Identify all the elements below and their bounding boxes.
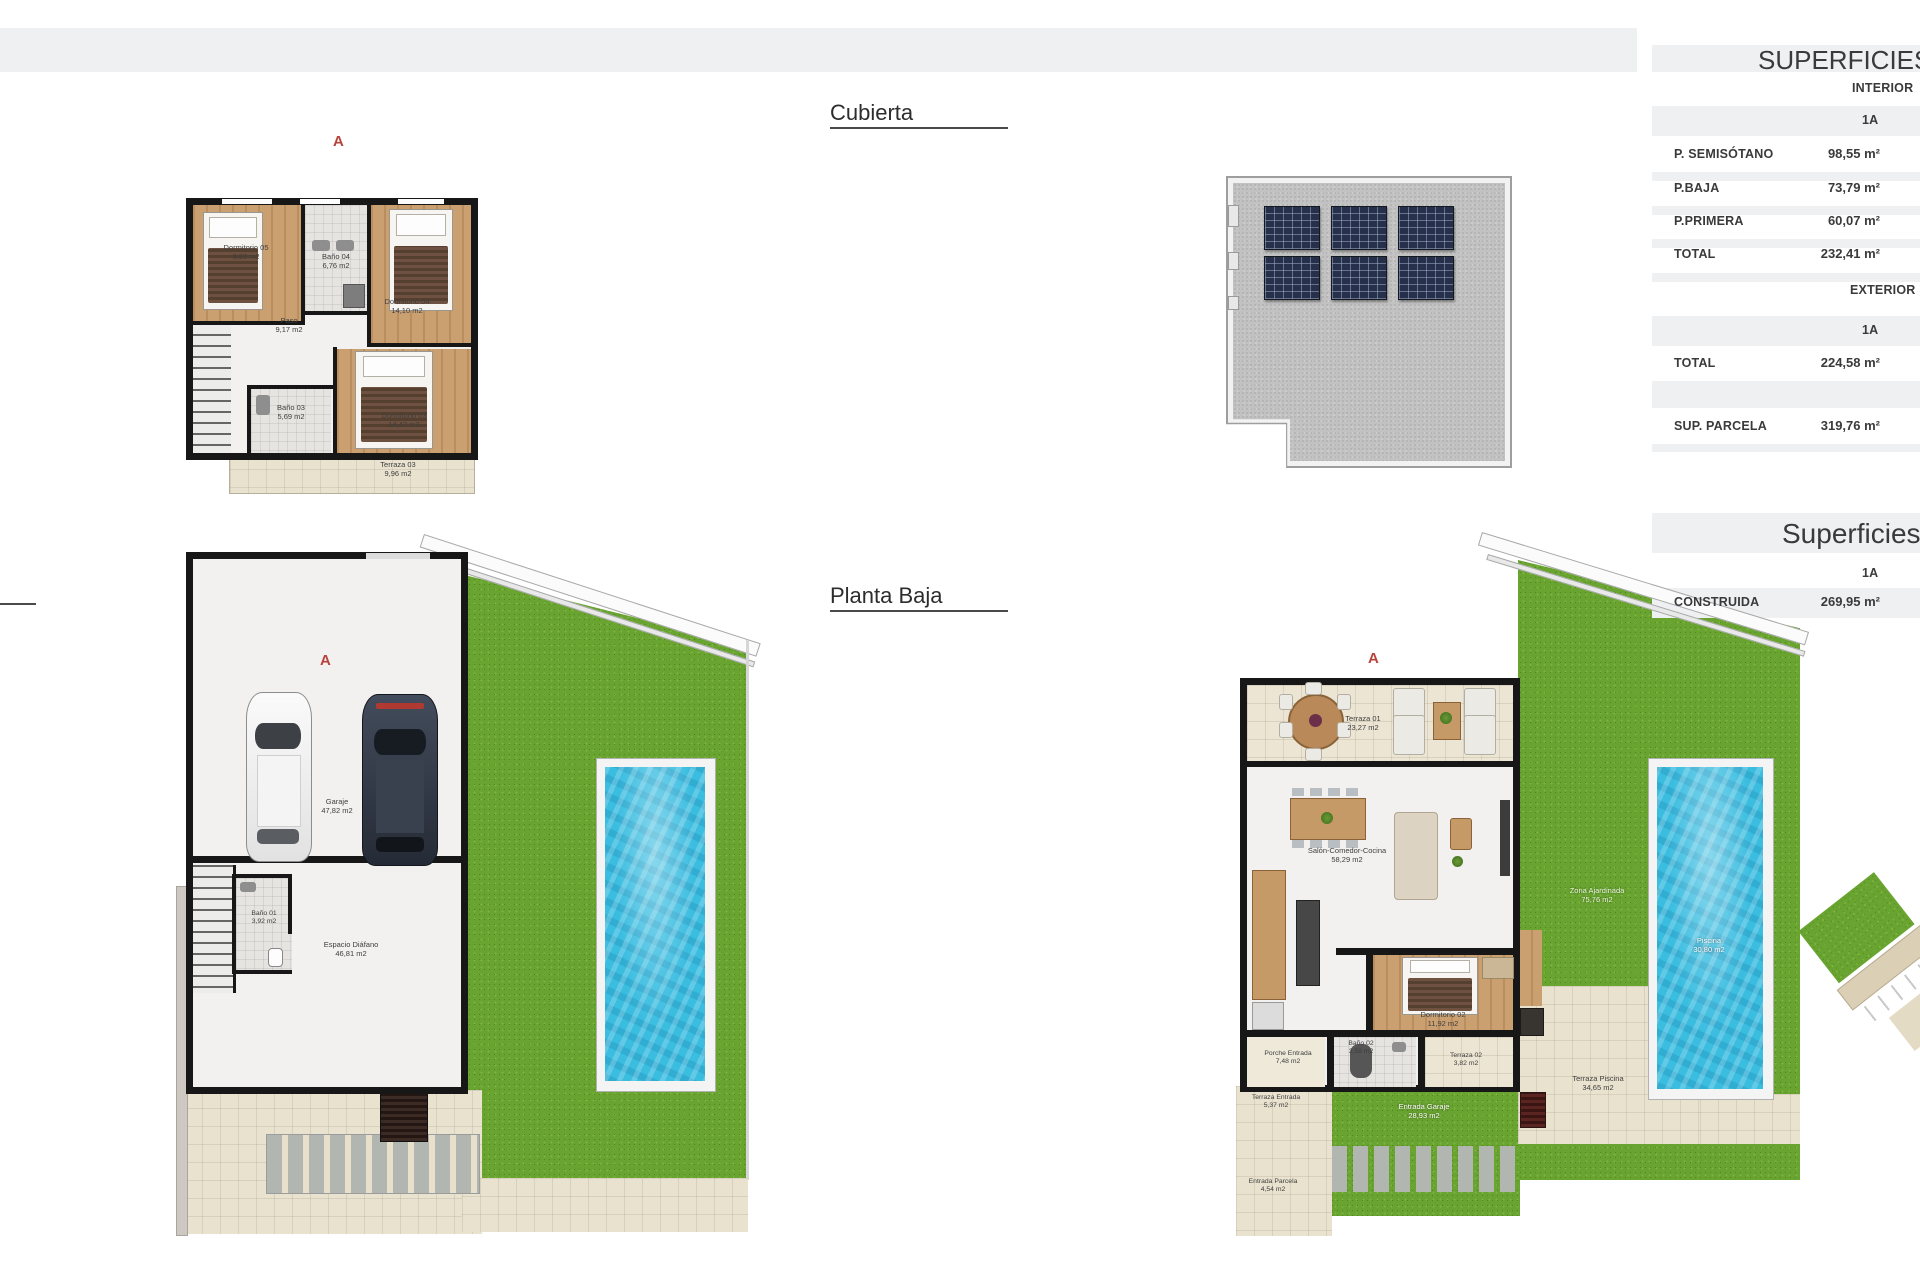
fridge [1252, 1002, 1284, 1030]
row-value-construida: 269,95 m² [1782, 594, 1880, 609]
room-label-bano-01: Baño 01 3,92 m2 [224, 910, 304, 927]
solar-panel [1331, 256, 1387, 300]
room-name: Terraza 02 [1426, 1052, 1506, 1060]
coffee-table [1450, 818, 1472, 850]
interior-wall [232, 970, 292, 974]
interior-wall [367, 205, 371, 347]
room-name: Porche Entrada [1253, 1050, 1323, 1058]
room-label-garaje: Garaje 47,82 m2 [287, 797, 387, 816]
tv-unit [1500, 800, 1510, 876]
interior-wall [1247, 1030, 1513, 1037]
pool-water [1657, 767, 1763, 1089]
row-label-sup-parcela: SUP. PARCELA [1674, 419, 1767, 433]
floor-plan-sheet: Cubierta Planta Baja SUPERFICIES INTERIO… [0, 0, 1920, 1280]
room-name: Terraza 01 [1313, 714, 1413, 723]
side-deck [1518, 930, 1542, 1006]
planta-baja-title: Planta Baja [830, 583, 943, 609]
room-name: Entrada Parcela [1240, 1178, 1306, 1186]
room-area: 14,42 m2 [354, 420, 454, 429]
parcel-boundary [746, 640, 749, 1180]
interior-wall [333, 347, 337, 453]
staircase [193, 323, 231, 453]
exterior-header: EXTERIOR [1850, 283, 1916, 297]
room-label-dormitorio-03: Dormitorio 03 14,42 m2 [354, 411, 454, 430]
room-area: 4,54 m2 [1240, 1186, 1306, 1194]
room-name: Salón-Comedor-Cocina [1292, 846, 1402, 855]
car-rear-window [376, 837, 424, 852]
garage-entrance-pavers [1332, 1146, 1518, 1192]
pool-water [605, 767, 705, 1081]
room-name: Garaje [287, 797, 387, 806]
blanket [394, 246, 447, 304]
solar-panel [1264, 206, 1320, 250]
room-area: 5,69 m2 [251, 412, 331, 421]
kitchen-island [1296, 900, 1320, 986]
room-name: Paso [249, 316, 329, 325]
room-name: Baño 02 [1330, 1040, 1392, 1048]
room-label-piscina: Piscina 30,80 m2 [1659, 936, 1759, 955]
doormat [380, 1092, 428, 1142]
room-area: 9,93 m2 [196, 252, 296, 261]
room-area: 6,76 m2 [296, 261, 376, 270]
interior-wall [247, 385, 335, 389]
room-area: 11,92 m2 [1393, 1019, 1493, 1028]
room-label-dormitorio-04: Dormitorio 04 14,10 m2 [357, 297, 457, 316]
plant [1440, 712, 1452, 724]
section-marker-a: A [1368, 650, 1379, 667]
room-name: Dormitorio 05 [196, 243, 296, 252]
room-area: 34,65 m2 [1548, 1083, 1648, 1092]
room-name: Baño 01 [224, 910, 304, 918]
room-area: 28,93 m2 [1384, 1111, 1464, 1120]
plant [1321, 812, 1333, 824]
sink [1392, 1042, 1406, 1052]
empty-row-band [1652, 381, 1920, 408]
row-label-semisotano: P. SEMISÓTANO [1674, 147, 1773, 161]
pillow [396, 214, 447, 236]
room-label-terraza-02: Terraza 02 3,82 m2 [1426, 1052, 1506, 1069]
sink [336, 240, 354, 251]
bed [389, 209, 453, 311]
car-windshield [255, 723, 301, 749]
room-name: Dormitorio 04 [357, 297, 457, 306]
room-name: Baño 03 [251, 403, 331, 412]
superficies-title: SUPERFICIES [1758, 45, 1920, 76]
room-area: 9,96 m2 [348, 469, 448, 478]
row-value-pbaja: 73,79 m² [1782, 180, 1880, 195]
roof-vent [1228, 205, 1239, 227]
interior-unit-label: 1A [1862, 113, 1878, 127]
doormat [1520, 1092, 1546, 1128]
chair-row [1292, 788, 1362, 796]
row-value-total-exterior: 224,58 m² [1782, 355, 1880, 370]
room-area: 47,82 m2 [287, 806, 387, 815]
cubierta-title-rule [830, 127, 1008, 129]
car-white [246, 692, 312, 862]
room-name: Zona Ajardinada [1547, 886, 1647, 895]
plant [1452, 856, 1463, 867]
room-label-zona-ajardinada: Zona Ajardinada 75,76 m2 [1547, 886, 1647, 905]
staircase [193, 865, 236, 993]
blanket [1408, 978, 1472, 1010]
car-roof [257, 755, 301, 827]
room-name: Piscina [1659, 936, 1759, 945]
sink [312, 240, 330, 251]
toilet [268, 948, 283, 967]
interior-wall [1336, 948, 1513, 955]
room-label-terraza-entrada: Terraza Entrada 5,37 m2 [1242, 1094, 1310, 1111]
bed [355, 351, 433, 449]
room-label-paso: Paso 9,17 m2 [249, 316, 329, 335]
pillow [363, 356, 425, 377]
section-marker-a: A [333, 133, 344, 150]
car-dark [362, 694, 438, 866]
pillow [1410, 960, 1471, 973]
room-label-dormitorio-02: Dormitorio 02 11,92 m2 [1393, 1010, 1493, 1029]
interior-wall [371, 343, 475, 347]
exterior-unit-band [1652, 316, 1920, 346]
room-name: Espacio Diáfano [301, 940, 401, 949]
row-label-construida: CONSTRUIDA [1674, 595, 1759, 609]
interior-wall [232, 874, 292, 878]
barbecue [1520, 1008, 1544, 1036]
room-area: 46,81 m2 [301, 949, 401, 958]
room-name: Terraza Entrada [1242, 1094, 1310, 1102]
room-area: 3,58 m2 [1330, 1048, 1392, 1056]
room-area: 23,27 m2 [1313, 723, 1413, 732]
construida-unit-label: 1A [1862, 566, 1878, 580]
row-value-semisotano: 98,55 m² [1782, 146, 1880, 161]
chair [1305, 748, 1322, 761]
room-area: 14,10 m2 [357, 306, 457, 315]
closet [1482, 957, 1514, 979]
room-area: 3,82 m2 [1426, 1060, 1506, 1068]
row-separator [1652, 273, 1920, 282]
garage-door [366, 553, 430, 559]
room-name: Entrada Garaje [1384, 1102, 1464, 1111]
perimeter-path [462, 1178, 748, 1232]
row-value-total-interior: 232,41 m² [1782, 246, 1880, 261]
row-label-pbaja: P.BAJA [1674, 181, 1719, 195]
solar-panel [1398, 256, 1454, 300]
chair [1279, 694, 1293, 710]
window [300, 199, 340, 204]
driveway-pavers [266, 1134, 480, 1194]
room-label-bano-02: Baño 02 3,58 m2 [1330, 1040, 1392, 1057]
solar-panel [1398, 206, 1454, 250]
kitchen-counter [1252, 870, 1286, 1000]
solar-panel [1264, 256, 1320, 300]
chair [1305, 682, 1322, 695]
car-rear-window [257, 829, 299, 844]
top-band [0, 28, 1637, 72]
row-separator [1652, 444, 1920, 452]
row-label-pprimera: P.PRIMERA [1674, 214, 1744, 228]
room-label-entrada-garaje: Entrada Garaje 28,93 m2 [1384, 1102, 1464, 1121]
room-name: Dormitorio 03 [354, 411, 454, 420]
room-area: 7,48 m2 [1253, 1058, 1323, 1066]
sink [240, 882, 256, 892]
room-area: 75,76 m2 [1547, 895, 1647, 904]
room-label-dormitorio-05: Dormitorio 05 9,93 m2 [196, 243, 296, 262]
window [222, 199, 272, 204]
glass-wall [1247, 761, 1513, 767]
car-windshield [374, 729, 426, 755]
room-label-espacio-diafano: Espacio Diáfano 46,81 m2 [301, 940, 401, 959]
left-edge-rule [0, 603, 36, 605]
chair [1337, 694, 1351, 710]
room-label-salon-comedor-cocina: Salón-Comedor-Cocina 58,29 m2 [1292, 846, 1402, 865]
terraza-piscina-floor [1700, 1094, 1800, 1144]
row-label-total-exterior: TOTAL [1674, 356, 1716, 370]
interior-wall [1418, 1037, 1425, 1087]
room-area: 3,92 m2 [224, 918, 304, 926]
room-label-porche-entrada: Porche Entrada 7,48 m2 [1253, 1050, 1323, 1067]
site-plan-fragment [1792, 841, 1920, 1091]
room-label-bano-04: Baño 04 6,76 m2 [296, 252, 376, 271]
room-label-terraza-01: Terraza 01 23,27 m2 [1313, 714, 1413, 733]
room-label-bano-03: Baño 03 5,69 m2 [251, 403, 331, 422]
interior-unit-band [1652, 106, 1920, 136]
room-label-terraza-03: Terraza 03 9,96 m2 [348, 460, 448, 479]
room-name: Dormitorio 02 [1393, 1010, 1493, 1019]
planta-baja-title-rule [830, 610, 1008, 612]
interior-header: INTERIOR [1852, 81, 1913, 95]
room-label-terraza-piscina: Terraza Piscina 34,65 m2 [1548, 1074, 1648, 1093]
interior-wall [1366, 948, 1373, 1037]
room-area: 5,37 m2 [1242, 1102, 1310, 1110]
window [398, 199, 444, 204]
exterior-unit-label: 1A [1862, 323, 1878, 337]
room-name: Terraza 03 [348, 460, 448, 469]
row-label-total-interior: TOTAL [1674, 247, 1716, 261]
room-area: 58,29 m2 [1292, 855, 1402, 864]
bed [1402, 957, 1478, 1015]
room-area: 30,80 m2 [1659, 945, 1759, 954]
car-taillight [376, 703, 424, 709]
row-value-pprimera: 60,07 m² [1782, 213, 1880, 228]
row-value-sup-parcela: 319,76 m² [1782, 418, 1880, 433]
room-name: Baño 04 [296, 252, 376, 261]
solar-panel [1331, 206, 1387, 250]
room-area: 9,17 m2 [249, 325, 329, 334]
chair [1279, 722, 1293, 738]
lounge-chair [1464, 715, 1496, 755]
roof-vent [1228, 296, 1239, 310]
pillow [209, 217, 257, 238]
cubierta-title: Cubierta [830, 100, 913, 126]
superficies-construida-title: Superficies [1782, 518, 1920, 550]
room-name: Terraza Piscina [1548, 1074, 1648, 1083]
section-marker-a: A [320, 652, 331, 669]
room-label-entrada-parcela: Entrada Parcela 4,54 m2 [1240, 1178, 1306, 1195]
roof-vent [1228, 252, 1239, 270]
